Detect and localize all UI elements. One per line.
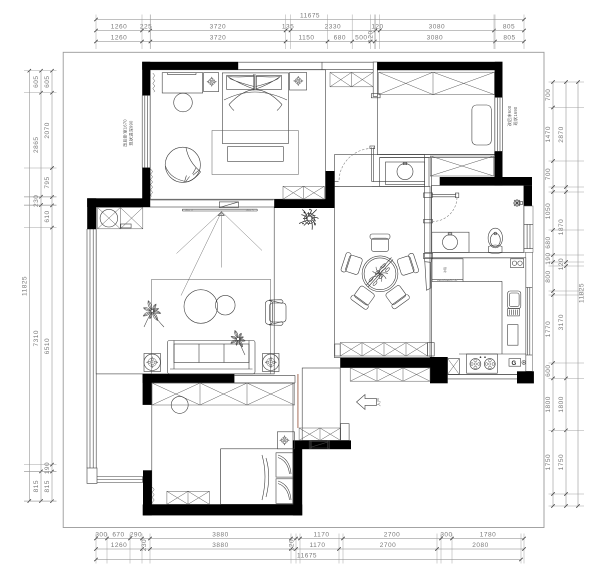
svg-text:冰箱: 冰箱 [442,267,447,273]
svg-text:2330: 2330 [325,23,341,30]
svg-text:2700: 2700 [380,542,396,549]
svg-text:1780: 1780 [480,531,496,538]
svg-text:805: 805 [503,34,515,41]
svg-text:190: 190 [545,252,552,264]
svg-text:1170: 1170 [310,542,326,549]
svg-text:3880: 3880 [212,542,228,549]
svg-text:800: 800 [545,270,552,282]
svg-text:11675: 11675 [300,12,320,19]
svg-text:JM1.5: JM1.5 [246,208,255,212]
svg-text:700: 700 [545,89,552,101]
svg-text:605: 605 [44,76,51,88]
svg-text:500: 500 [355,34,367,41]
svg-text:290: 290 [130,531,142,538]
svg-text:REFRIGERATOR: REFRIGERATOR [437,278,457,282]
svg-text:3170: 3170 [558,314,565,330]
svg-text:改后卧室1670: 改后卧室1670 [122,119,129,147]
svg-text:120: 120 [289,539,296,551]
svg-text:2700: 2700 [384,531,400,538]
svg-text:3880: 3880 [212,531,228,538]
svg-text:入户: 入户 [375,398,382,407]
svg-text:1260: 1260 [111,23,127,30]
svg-text:1050: 1050 [545,203,552,219]
svg-text:300: 300 [95,531,107,538]
svg-text:1470: 1470 [545,126,552,142]
svg-text:1750: 1750 [545,454,552,470]
svg-text:600: 600 [545,365,552,377]
svg-text:700: 700 [545,168,552,180]
svg-text:1800: 1800 [558,396,565,412]
svg-text:现状进深990: 现状进深990 [128,120,135,146]
svg-text:1150: 1150 [299,34,315,41]
svg-text:改后床600: 改后床600 [506,105,513,126]
svg-text:815: 815 [33,480,40,492]
svg-text:1170: 1170 [314,531,330,538]
svg-text:2865: 2865 [33,136,40,152]
svg-text:795: 795 [44,176,51,188]
svg-text:1870: 1870 [558,219,565,235]
svg-text:7310: 7310 [33,330,40,346]
svg-text:120: 120 [368,30,375,42]
svg-text:11825: 11825 [22,276,29,296]
svg-text:815: 815 [44,480,51,492]
svg-text:6510: 6510 [44,338,51,354]
svg-text:2070: 2070 [44,122,51,138]
svg-text:300: 300 [440,531,452,538]
svg-text:805: 805 [503,23,515,30]
svg-text:2080: 2080 [472,542,488,549]
svg-text:3080: 3080 [427,34,443,41]
svg-text:1260: 1260 [111,34,127,41]
svg-text:190: 190 [44,462,51,474]
svg-text:670: 670 [112,531,124,538]
svg-text:120: 120 [371,23,383,30]
svg-text:11825: 11825 [579,283,586,303]
svg-text:3080: 3080 [429,23,445,30]
svg-text:1770: 1770 [545,321,552,337]
svg-text:120: 120 [558,258,565,270]
svg-text:1800: 1800 [545,396,552,412]
svg-text:3720: 3720 [210,34,226,41]
svg-text:3720: 3720 [210,23,226,30]
svg-text:2870: 2870 [558,126,565,142]
svg-text:680: 680 [334,34,346,41]
svg-text:1260: 1260 [111,542,127,549]
svg-text:605: 605 [33,76,40,88]
svg-text:现状1690: 现状1690 [512,106,519,125]
svg-text:680: 680 [545,236,552,248]
svg-text:135: 135 [282,23,294,30]
svg-text:G: G [512,361,517,367]
svg-text:1750: 1750 [558,454,565,470]
svg-text:JM2.0: JM2.0 [185,208,194,212]
svg-text:610: 610 [44,210,51,222]
